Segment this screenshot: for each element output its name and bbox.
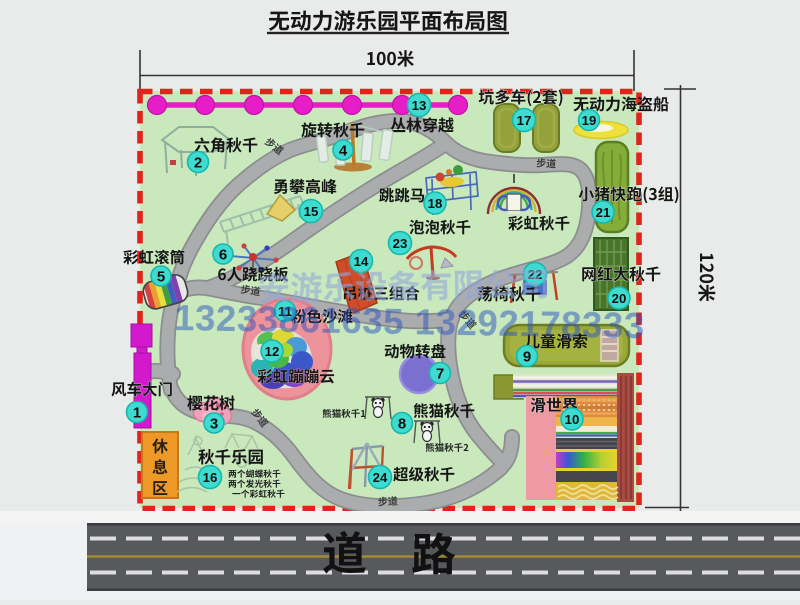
svg-text:19: 19 — [582, 113, 597, 128]
svg-text:16: 16 — [203, 470, 218, 485]
svg-text:7: 7 — [436, 365, 444, 382]
svg-text:9: 9 — [523, 348, 531, 365]
svg-text:17: 17 — [517, 113, 532, 128]
svg-text:20: 20 — [612, 291, 627, 306]
svg-text:5: 5 — [157, 268, 165, 285]
svg-text:8: 8 — [398, 415, 406, 432]
svg-text:24: 24 — [373, 470, 388, 485]
svg-text:23: 23 — [393, 236, 408, 251]
svg-text:3: 3 — [210, 415, 218, 432]
svg-text:10: 10 — [565, 412, 580, 427]
svg-text:21: 21 — [596, 205, 611, 220]
svg-text:2: 2 — [194, 154, 202, 171]
svg-text:1: 1 — [133, 404, 141, 421]
svg-text:12: 12 — [265, 344, 280, 359]
svg-text:6: 6 — [219, 246, 227, 263]
svg-text:4: 4 — [339, 142, 348, 159]
svg-text:15: 15 — [304, 204, 319, 219]
svg-text:14: 14 — [354, 254, 369, 269]
svg-text:13233861635 13292178333: 13233861635 13292178333 — [174, 297, 645, 346]
svg-text:18: 18 — [428, 196, 443, 211]
svg-text:13: 13 — [412, 98, 427, 113]
